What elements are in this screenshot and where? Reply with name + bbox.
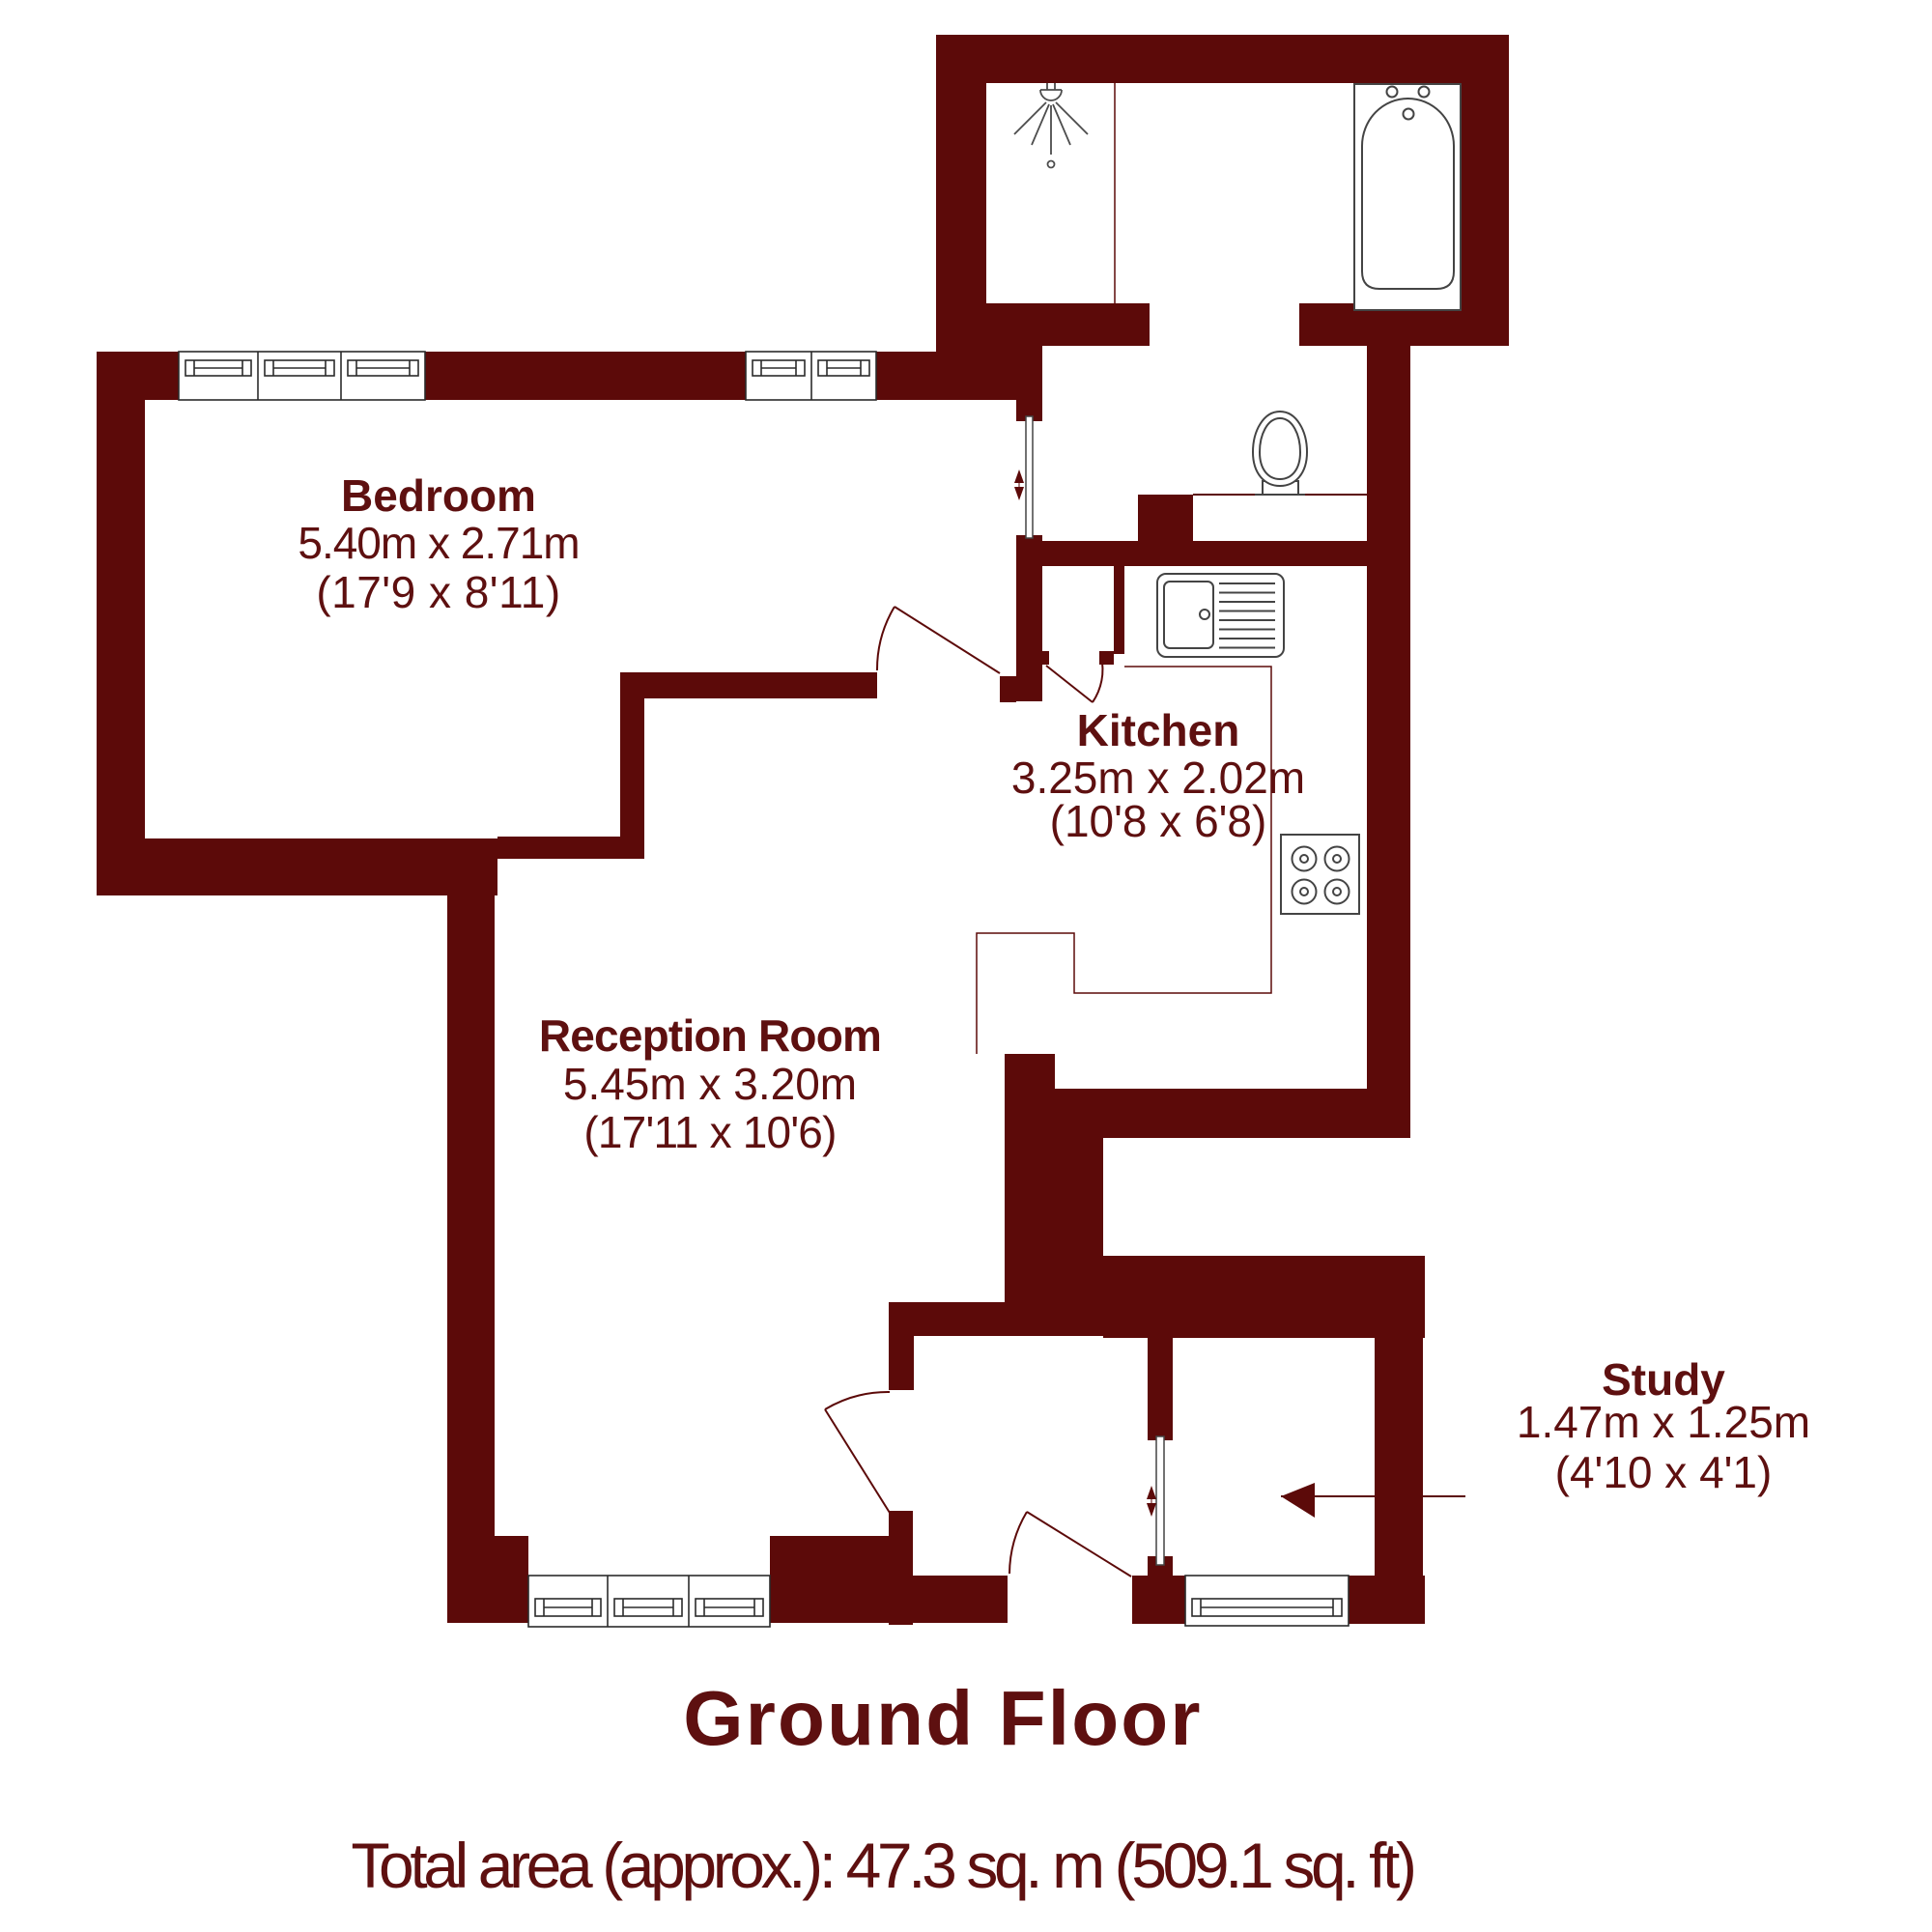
svg-text:Ground Floor: Ground Floor [683, 1675, 1202, 1761]
svg-text:(17'9 x 8'11): (17'9 x 8'11) [316, 567, 560, 617]
svg-text:Reception Room: Reception Room [539, 1010, 881, 1061]
svg-text:Bedroom: Bedroom [341, 470, 536, 521]
svg-text:(4'10 x 4'1): (4'10 x 4'1) [1555, 1447, 1773, 1497]
svg-text:(17'11 x 10'6): (17'11 x 10'6) [583, 1107, 836, 1157]
svg-text:5.40m x 2.71m: 5.40m x 2.71m [298, 518, 579, 568]
svg-text:5.45m x 3.20m: 5.45m x 3.20m [563, 1059, 857, 1109]
svg-text:1.47m x 1.25m: 1.47m x 1.25m [1517, 1397, 1810, 1447]
svg-text:Kitchen: Kitchen [1077, 705, 1240, 755]
svg-text:Total area (approx.): 47.3 sq.: Total area (approx.): 47.3 sq. m (509.1 … [351, 1830, 1413, 1901]
svg-text:(10'8 x 6'8): (10'8 x 6'8) [1050, 796, 1267, 846]
